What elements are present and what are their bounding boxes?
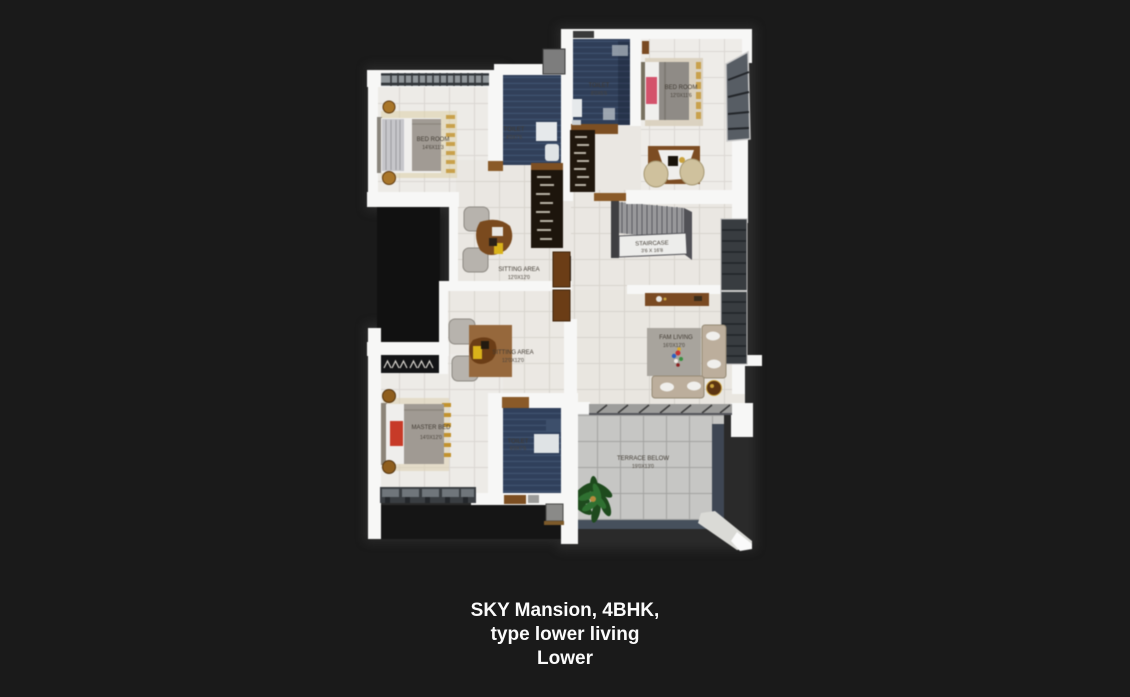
svg-text:14'0X12'0: 14'0X12'0 [420,435,442,441]
svg-text:4'0X7'6: 4'0X7'6 [506,135,523,141]
svg-text:TOILET: TOILET [508,439,529,445]
svg-text:16'0X12'0: 16'0X12'0 [663,343,685,349]
svg-text:BED ROOM: BED ROOM [417,137,450,143]
svg-text:12'0X11'6: 12'0X11'6 [670,93,692,99]
svg-text:12'0X12'0: 12'0X12'0 [502,358,524,364]
svg-text:19'0X13'0: 19'0X13'0 [632,464,654,470]
svg-text:SITTING AREA: SITTING AREA [498,267,539,273]
svg-text:SITTING AREA: SITTING AREA [492,350,533,356]
svg-text:BED ROOM: BED ROOM [665,85,698,91]
svg-text:8'0X5'6: 8'0X5'6 [591,91,608,97]
svg-text:14'6X11'3: 14'6X11'3 [422,145,444,151]
svg-text:TOILET: TOILET [589,83,610,89]
svg-text:FAM LIVING: FAM LIVING [659,335,693,341]
svg-text:MASTER BED: MASTER BED [411,425,451,431]
svg-text:6'0X7'6: 6'0X7'6 [510,446,527,452]
svg-text:TOILET: TOILET [504,127,525,133]
svg-text:STAIRCASE: STAIRCASE [635,241,669,248]
svg-text:12'0X12'0: 12'0X12'0 [508,275,530,281]
svg-text:TERRACE BELOW: TERRACE BELOW [617,456,669,462]
svg-text:3'6 X 16'8: 3'6 X 16'8 [641,248,663,255]
